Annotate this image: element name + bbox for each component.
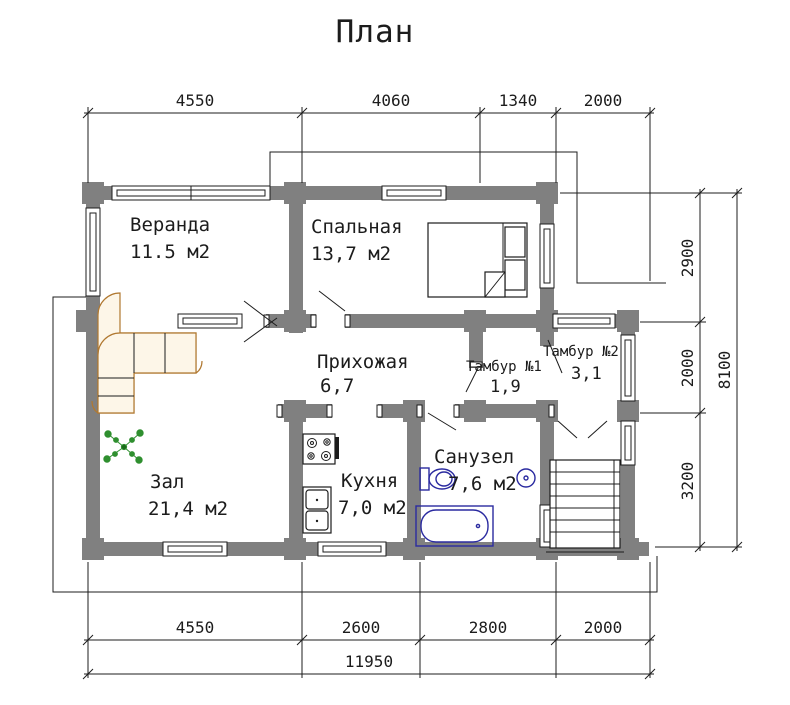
plant-icon — [104, 430, 143, 463]
room-label-bathroom: Санузел — [434, 446, 514, 468]
window — [540, 224, 554, 288]
window — [621, 421, 635, 465]
room-label-veranda: Веранда — [130, 214, 210, 236]
dim-bottom-4: 2000 — [584, 618, 623, 637]
dim-top-2: 4060 — [372, 91, 411, 110]
dim-top-1: 4550 — [176, 91, 215, 110]
dim-bottom-3: 2800 — [469, 618, 508, 637]
room-label-hallway: Прихожая — [317, 351, 409, 373]
washbasin-icon — [517, 469, 535, 487]
dim-right-1: 2900 — [678, 239, 697, 278]
room-area-hallway: 6,7 — [320, 375, 354, 397]
dim-bottom-1: 4550 — [176, 618, 215, 637]
room-area-veranda: 11.5 м2 — [130, 241, 210, 263]
dim-top-3: 1340 — [499, 91, 538, 110]
room-label-tambour-1: Тамбур №1 — [466, 359, 542, 375]
room-area-tambour-2: 3,1 — [571, 364, 602, 384]
room-label-hall: Зал — [150, 471, 184, 493]
dim-right-total: 8100 — [715, 351, 734, 390]
room-label-kitchen: Кухня — [341, 470, 398, 492]
window — [621, 335, 635, 401]
bed-icon — [428, 223, 527, 297]
window — [382, 186, 446, 200]
floor-plan-drawing: План — [0, 0, 790, 705]
floor-plan-page: План — [0, 0, 790, 705]
window — [112, 186, 270, 200]
room-area-kitchen: 7,0 м2 — [338, 497, 407, 519]
bathtub-icon — [416, 506, 493, 546]
window — [553, 314, 615, 328]
window — [86, 208, 100, 296]
dim-right-2: 2000 — [678, 349, 697, 388]
room-area-bathroom: 7,6 м2 — [448, 473, 517, 495]
dim-bottom-2: 2600 — [342, 618, 381, 637]
kitchen-sink-icon — [303, 487, 331, 533]
window — [178, 314, 242, 328]
room-area-hall: 21,4 м2 — [148, 498, 228, 520]
stairs-icon — [546, 460, 624, 552]
room-label-bedroom: Спальная — [311, 216, 403, 238]
room-label-tambour-2: Тамбур №2 — [543, 344, 619, 360]
dim-right-3: 3200 — [678, 462, 697, 501]
page-title: План — [336, 14, 415, 50]
room-area-bedroom: 13,7 м2 — [311, 243, 391, 265]
window — [318, 542, 386, 556]
dim-bottom-total: 11950 — [345, 652, 393, 671]
window — [163, 542, 227, 556]
room-area-tambour-1: 1,9 — [490, 377, 521, 397]
stove-icon — [303, 434, 339, 464]
sofa-icon — [92, 293, 202, 413]
dim-top-4: 2000 — [584, 91, 623, 110]
